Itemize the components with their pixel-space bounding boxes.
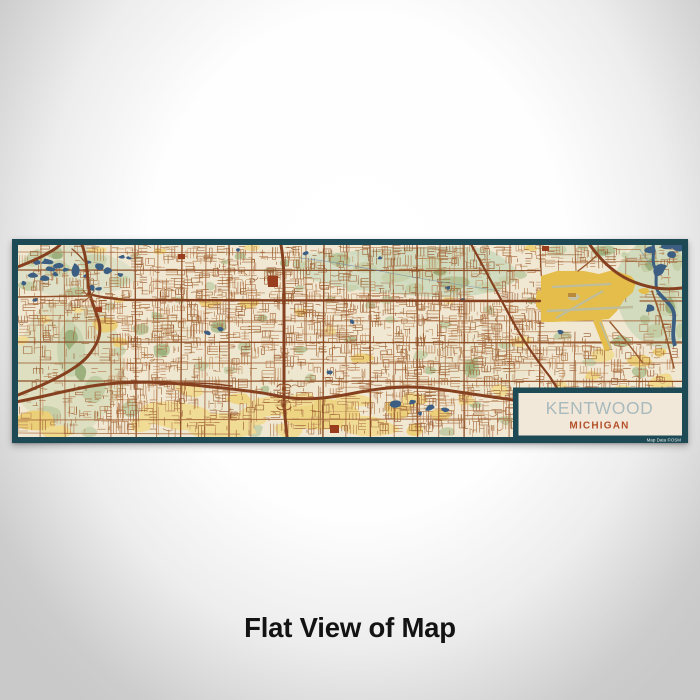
svg-text:KENTWOOD: KENTWOOD [546, 398, 654, 418]
svg-text:MICHIGAN: MICHIGAN [569, 421, 629, 432]
svg-text:Map Data ©OSM: Map Data ©OSM [647, 437, 682, 443]
